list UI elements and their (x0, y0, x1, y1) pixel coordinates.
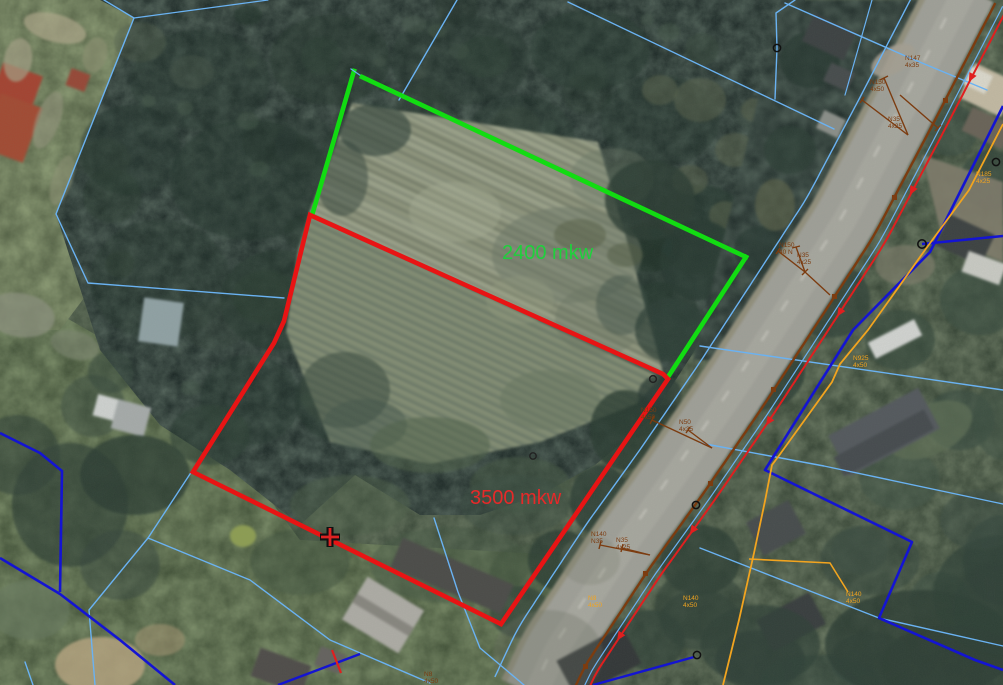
svg-text:N8: N8 (588, 595, 597, 602)
svg-text:4x50: 4x50 (846, 598, 860, 605)
svg-text:4x50: 4x50 (853, 362, 867, 369)
svg-text:4x50: 4x50 (424, 678, 438, 685)
svg-text:N150: N150 (779, 242, 795, 249)
svg-text:4x25: 4x25 (888, 123, 902, 130)
svg-text:N147: N147 (905, 55, 921, 62)
svg-text:4x50: 4x50 (588, 602, 602, 609)
svg-text:4x50: 4x50 (870, 86, 884, 93)
svg-text:2400 mkw: 2400 mkw (502, 242, 594, 264)
svg-text:4x25: 4x25 (976, 178, 990, 185)
svg-text:N35: N35 (888, 116, 900, 123)
svg-text:N150: N150 (641, 407, 657, 414)
svg-text:4x25: 4x25 (797, 259, 811, 266)
svg-text:4x50: 4x50 (683, 602, 697, 609)
svg-text:N50: N50 (679, 419, 691, 426)
svg-text:N150: N150 (870, 79, 886, 86)
svg-text:N140: N140 (683, 595, 699, 602)
svg-text:4x25: 4x25 (616, 544, 630, 551)
svg-text:N925: N925 (853, 355, 869, 362)
svg-text:N185: N185 (976, 171, 992, 178)
svg-text:40 N: 40 N (779, 249, 793, 256)
svg-text:N35: N35 (797, 252, 809, 259)
svg-text:4x50: 4x50 (641, 414, 655, 421)
svg-text:N140: N140 (846, 591, 862, 598)
svg-text:4x35: 4x35 (905, 62, 919, 69)
svg-text:N35: N35 (591, 538, 603, 545)
svg-text:N35: N35 (616, 537, 628, 544)
svg-text:3500 mkw: 3500 mkw (470, 487, 562, 509)
svg-text:N140: N140 (591, 531, 607, 538)
svg-text:4x35: 4x35 (679, 426, 693, 433)
svg-text:N8: N8 (424, 671, 433, 678)
